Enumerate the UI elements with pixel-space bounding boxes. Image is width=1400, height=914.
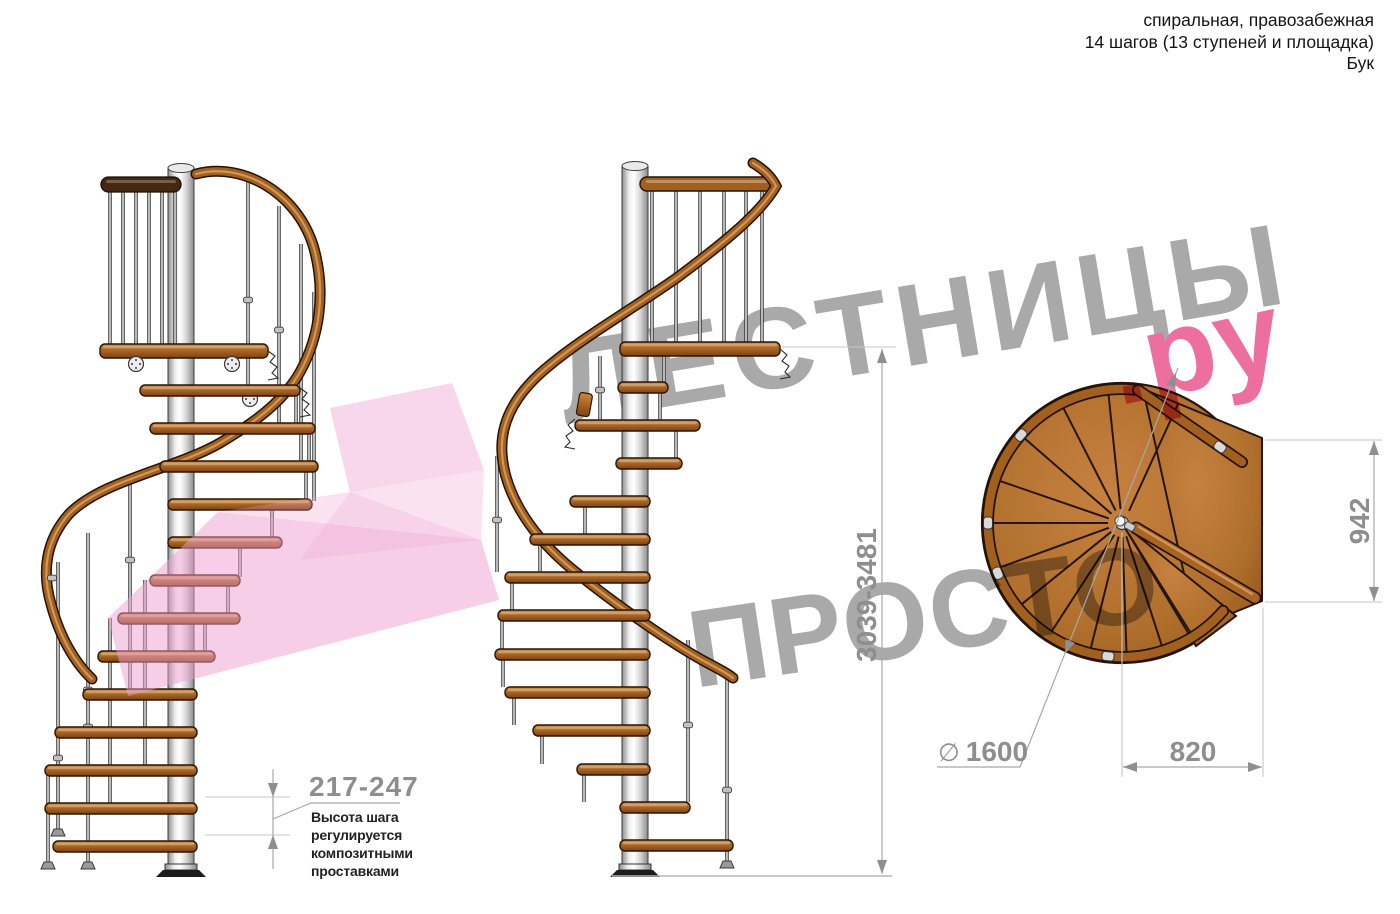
material: Бук (1085, 53, 1374, 75)
platform-depth-dimension: 820 (1153, 736, 1233, 768)
elevation-views-drawing (0, 0, 1400, 914)
diameter-dimension: ∅ 1600 (938, 736, 1028, 768)
drawing-canvas: ЛЕСТНИЦЫ ПРОСТО .ру с (0, 0, 1400, 914)
labels-layer: спиральная, правозабежная 14 шагов (13 с… (0, 0, 1400, 914)
note-line: регулируется (311, 826, 413, 844)
step-count: 14 шагов (13 ступеней и площадка) (1085, 32, 1374, 54)
left-elevation-view (41, 164, 320, 878)
title-block: спиральная, правозабежная 14 шагов (13 с… (1085, 10, 1374, 75)
watermark-suffix: .ру (1096, 264, 1295, 433)
note-line: композитными (311, 844, 413, 862)
watermark: ЛЕСТНИЦЫ ПРОСТО .ру (0, 0, 1400, 914)
dimension-lines (0, 0, 1400, 914)
diameter-icon: ∅ (938, 738, 960, 768)
step-height-dimension: 217-247 (309, 771, 419, 803)
plan-view-drawing (0, 0, 1400, 914)
diameter-value: 1600 (966, 736, 1028, 768)
stair-type: спиральная, правозабежная (1085, 10, 1374, 32)
middle-elevation-view (493, 160, 791, 877)
watermark-word-2: ПРОСТО (680, 518, 1169, 714)
rotation-arrow-watermark (108, 383, 499, 696)
note-line: проставками (311, 862, 413, 880)
watermark-word-1: ЛЕСТНИЦЫ (548, 196, 1300, 450)
step-height-note: Высота шага регулируется композитными пр… (311, 808, 413, 880)
total-height-dimension: 3039-3481 (851, 510, 881, 680)
note-line: Высота шага (311, 808, 413, 826)
platform-width-dimension: 942 (1344, 481, 1374, 561)
